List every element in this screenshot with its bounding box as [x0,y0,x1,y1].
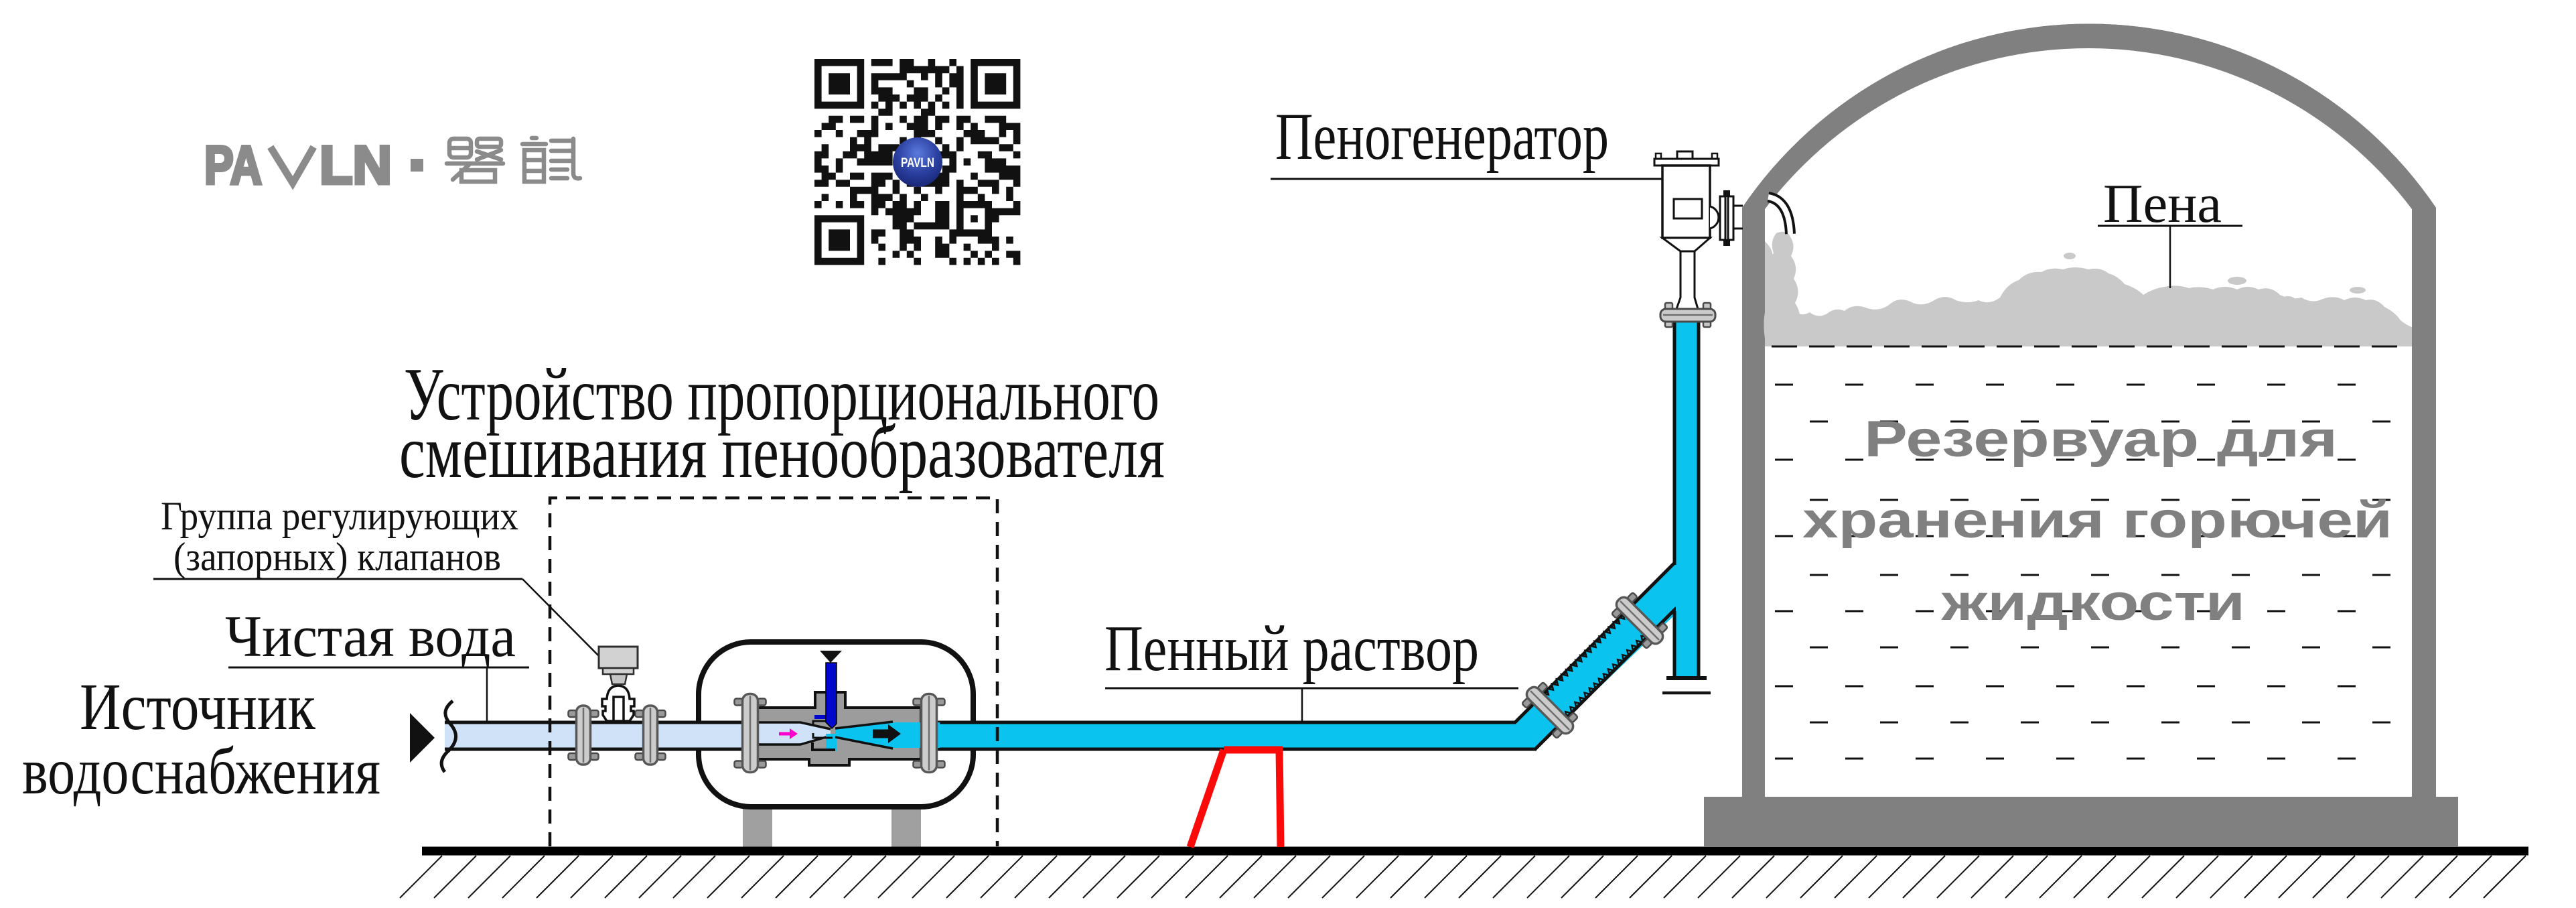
svg-text:Пена: Пена [2103,173,2222,234]
svg-text:Источник: Источник [80,669,315,744]
svg-text:PA: PA [204,135,262,196]
svg-text:(запорных) клапанов: (запорных) клапанов [173,535,501,579]
svg-text:LN: LN [319,135,392,196]
svg-text:Пеногенератор: Пеногенератор [1275,99,1609,174]
svg-text:Резервуар для: Резервуар для [1864,411,2338,468]
svg-text:водоснабжения: водоснабжения [22,734,380,808]
svg-text:жидкости: жидкости [1941,574,2245,631]
svg-text:смешивания пенообразователя: смешивания пенообразователя [399,411,1165,494]
svg-text:Чистая вода: Чистая вода [225,604,516,669]
svg-text:Пенный раствор: Пенный раствор [1104,612,1479,684]
svg-text:хранения горючей: хранения горючей [1802,492,2392,549]
svg-text:PAVLN: PAVLN [901,156,934,170]
svg-text:Группа регулирующих: Группа регулирующих [161,494,518,538]
